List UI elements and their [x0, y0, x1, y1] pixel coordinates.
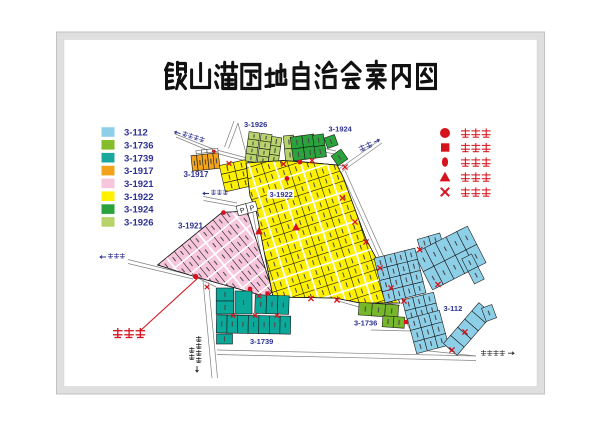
svg-text:3-1739: 3-1739 — [250, 337, 273, 346]
svg-text:3-1917: 3-1917 — [184, 170, 209, 179]
svg-text:3-1926: 3-1926 — [244, 120, 267, 129]
svg-text:3-1924: 3-1924 — [329, 125, 353, 134]
svg-text:3-112: 3-112 — [444, 304, 463, 313]
svg-text:3-1922: 3-1922 — [124, 192, 154, 203]
svg-text:3-1921: 3-1921 — [178, 222, 203, 231]
svg-text:3-1736: 3-1736 — [124, 140, 154, 151]
svg-text:3-1924: 3-1924 — [124, 205, 154, 216]
svg-text:3-1736: 3-1736 — [354, 319, 377, 328]
svg-text:3-1739: 3-1739 — [124, 153, 154, 164]
svg-text:3-112: 3-112 — [124, 128, 148, 139]
svg-text:3-1926: 3-1926 — [124, 218, 154, 229]
svg-text:3-1921: 3-1921 — [124, 179, 154, 190]
svg-text:3-1917: 3-1917 — [124, 166, 154, 177]
svg-text:3-1922: 3-1922 — [270, 190, 293, 199]
